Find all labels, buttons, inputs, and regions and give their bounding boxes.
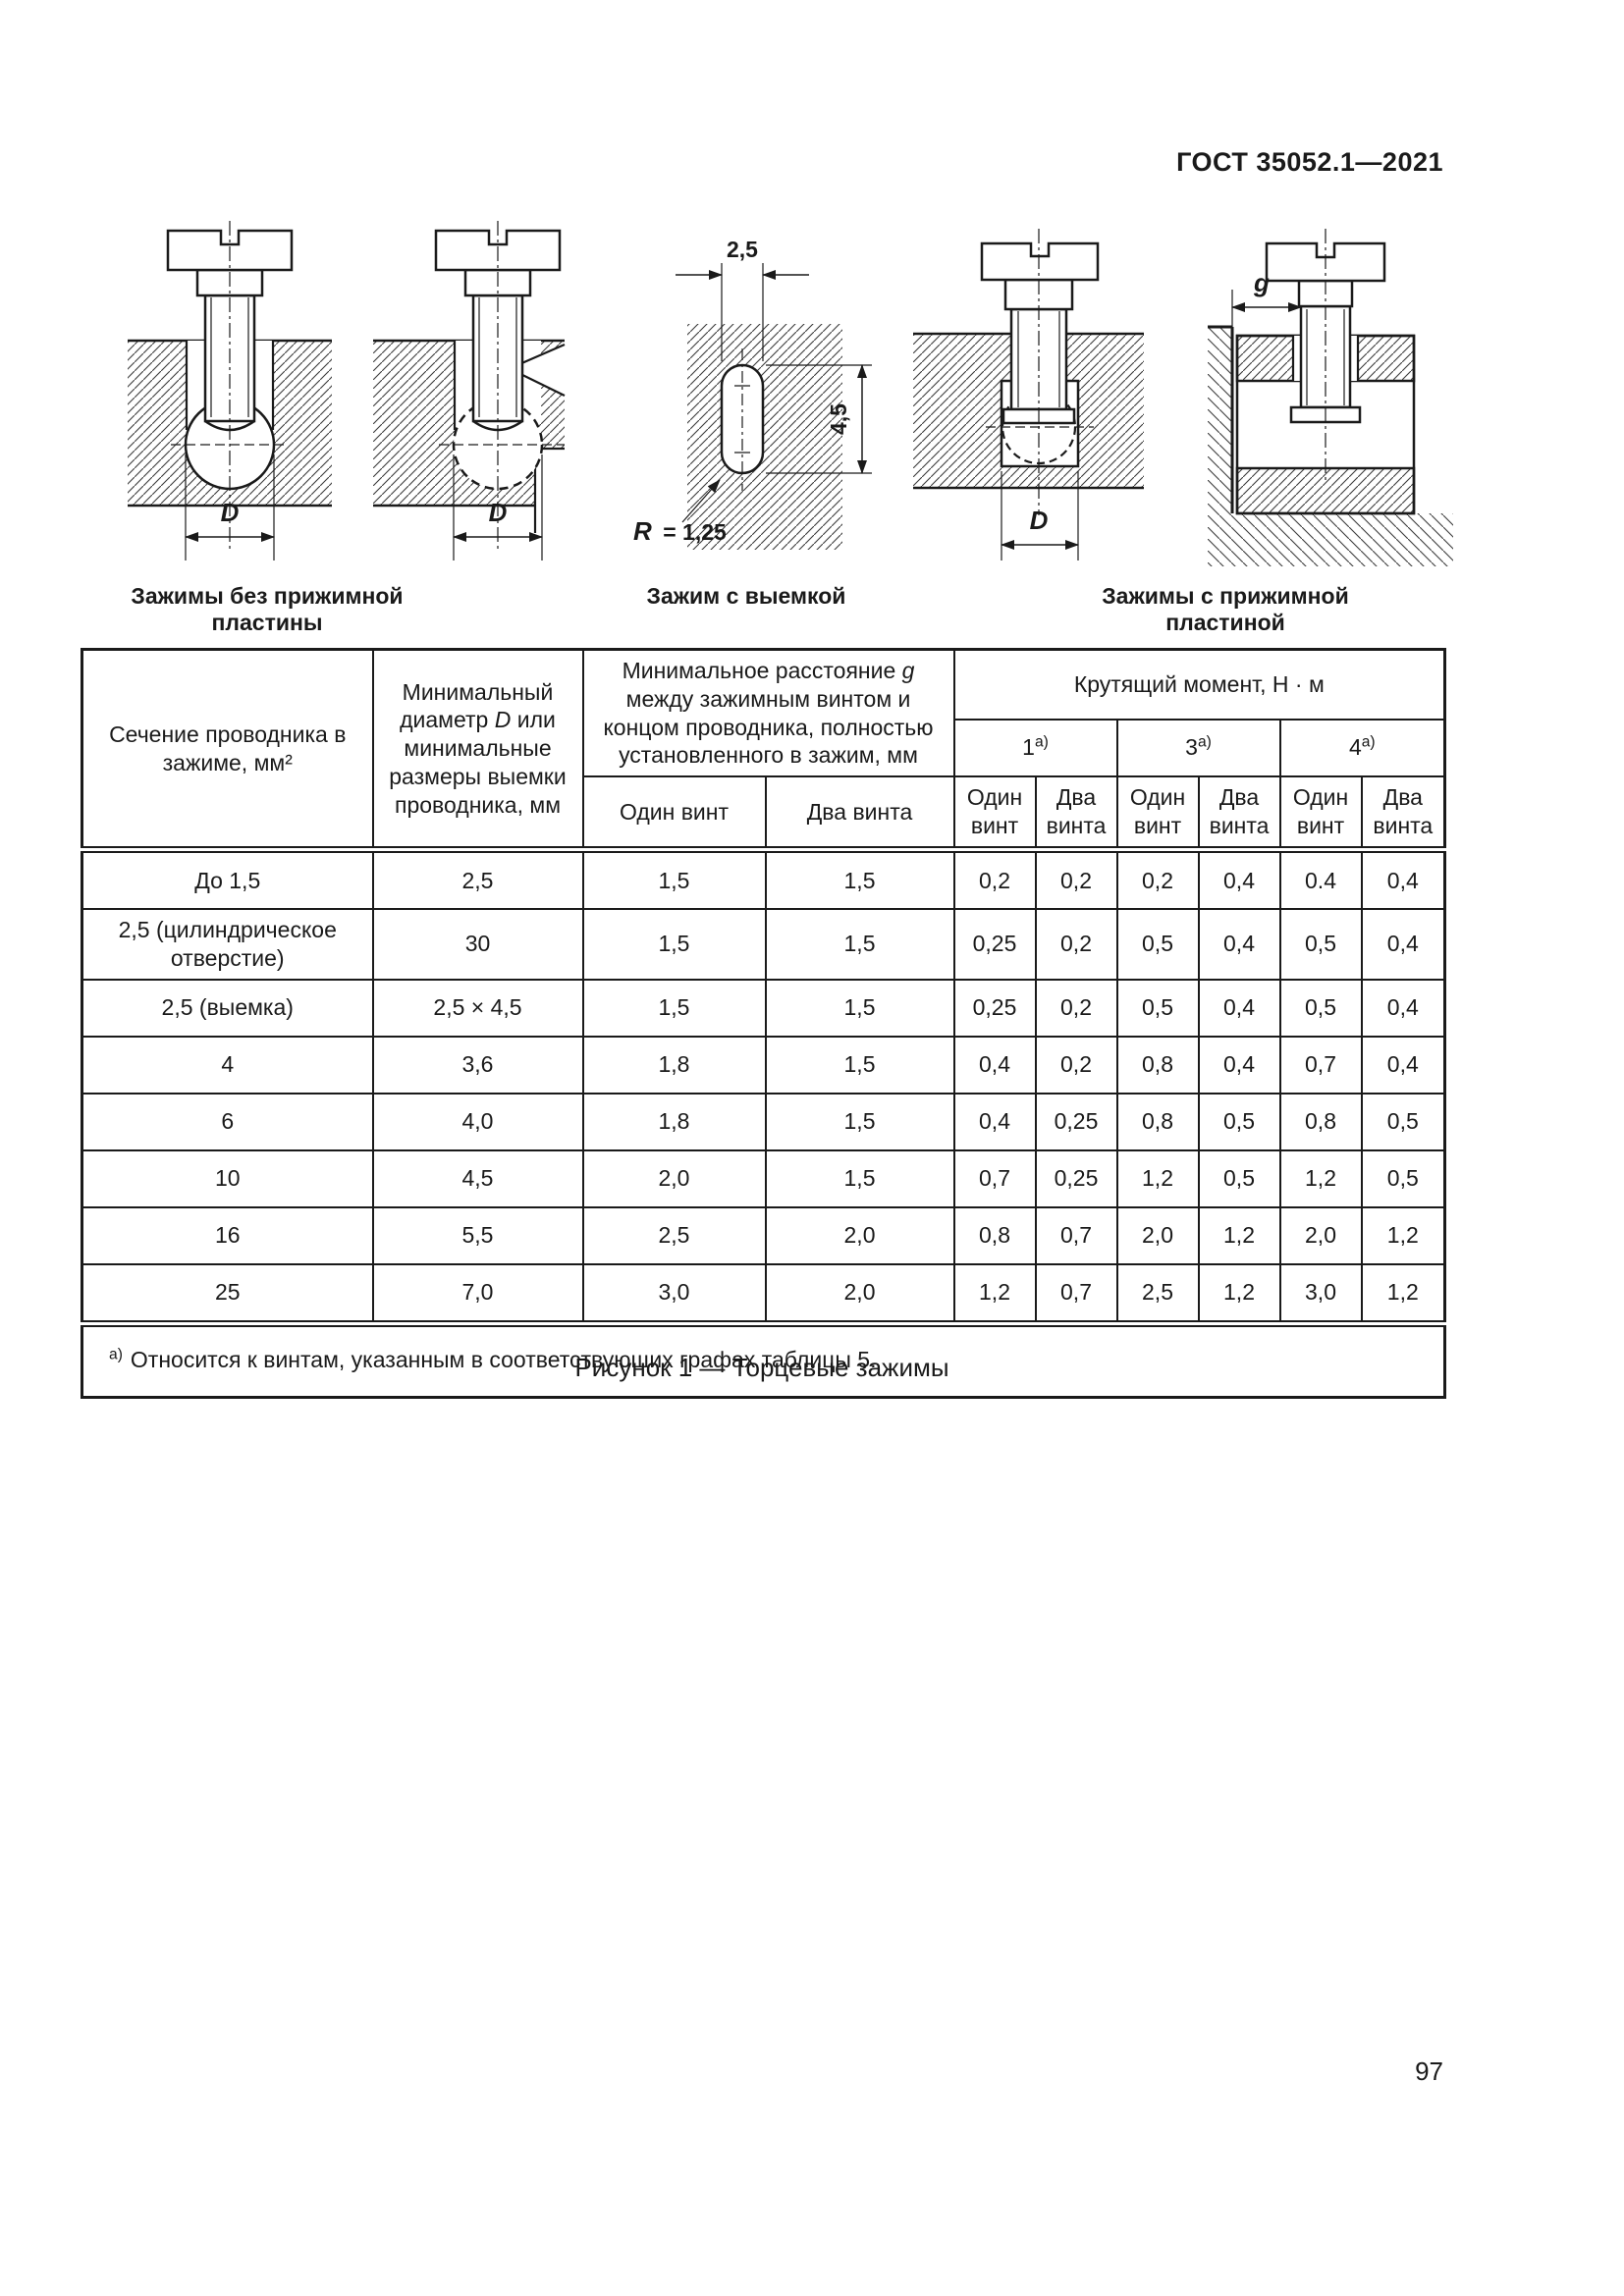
- drawing-graphics: [913, 229, 1144, 561]
- drawing-clamp-with-plate-2: g: [1208, 221, 1458, 574]
- header-cell-two-screws: Два винта: [1036, 776, 1117, 850]
- data-cell: 1,5: [766, 909, 954, 980]
- standard-number: ГОСТ 35052.1—2021: [1176, 147, 1443, 178]
- data-cell: 0,4: [1362, 1037, 1445, 1094]
- data-cell: 0,25: [954, 909, 1036, 980]
- data-cell: 4,5: [373, 1150, 583, 1207]
- data-cell: 1,5: [583, 909, 766, 980]
- header-text: между зажимным винтом и концом проводник…: [603, 686, 933, 769]
- data-cell: 0,4: [954, 1094, 1036, 1150]
- data-cell: 1,2: [1362, 1207, 1445, 1264]
- data-cell: 0,5: [1362, 1150, 1445, 1207]
- dimension-label-slot-width: 2,5: [727, 237, 758, 262]
- table-row: До 1,5 2,5 1,5 1,5 0,2 0,2 0,2 0,4 0.4 0…: [82, 850, 1445, 910]
- header-cell-one-screw: Один винт: [954, 776, 1036, 850]
- drawing-graphics: [373, 221, 565, 561]
- drawing-clamp-with-recess: 2,5 4,5 R = 1,25: [628, 226, 884, 579]
- table-row: 25 7,0 3,0 2,0 1,2 0,7 2,5 1,2 3,0 1,2: [82, 1264, 1445, 1324]
- group-footnote-ref: а): [1362, 734, 1376, 751]
- data-cell: 0,25: [1036, 1150, 1117, 1207]
- data-cell: 0,2: [954, 850, 1036, 910]
- data-cell: 0,7: [954, 1150, 1036, 1207]
- dimension-label-g: g: [1253, 268, 1270, 297]
- group-footnote-ref: а): [1035, 734, 1049, 751]
- data-cell: 0,8: [1117, 1094, 1199, 1150]
- data-cell: 1,2: [1199, 1264, 1280, 1324]
- data-cell: 2,5 × 4,5: [373, 980, 583, 1037]
- data-cell: 0,4: [954, 1037, 1036, 1094]
- data-cell: 2,5 (цилиндрическое отверстие): [82, 909, 373, 980]
- header-cell-cross-section: Сечение проводника в зажиме, мм²: [82, 650, 373, 850]
- header-cell-min-diameter: Минимальный диаметр D или минимальные ра…: [373, 650, 583, 850]
- caption-clamps-without-plate: Зажимы без прижимной пластины: [81, 583, 454, 636]
- header-cell-screw-type-3: 3а): [1117, 720, 1280, 776]
- data-cell: 1,8: [583, 1037, 766, 1094]
- header-cell-screw-type-1: 1а): [954, 720, 1117, 776]
- header-cell-two-screws: Два винта: [1362, 776, 1445, 850]
- group-number: 3: [1185, 734, 1198, 760]
- data-cell: 0,2: [1036, 909, 1117, 980]
- data-cell: 30: [373, 909, 583, 980]
- data-cell: 0,8: [1280, 1094, 1362, 1150]
- data-cell: 1,2: [1117, 1150, 1199, 1207]
- data-cell: 0.4: [1280, 850, 1362, 910]
- data-cell: 0,4: [1362, 980, 1445, 1037]
- data-cell: 0,4: [1199, 1037, 1280, 1094]
- data-cell: 3,6: [373, 1037, 583, 1094]
- data-cell: 0,5: [1280, 909, 1362, 980]
- caption-clamps-with-plate: Зажимы с прижимной пластиной: [1044, 583, 1407, 636]
- data-cell: 4,0: [373, 1094, 583, 1150]
- header-cell-two-screws: Два винта: [1199, 776, 1280, 850]
- data-cell: 1,5: [766, 1037, 954, 1094]
- header-var-d: D: [495, 707, 512, 732]
- group-number: 4: [1349, 734, 1362, 760]
- header-cell-one-screw: Один винт: [1280, 776, 1362, 850]
- data-cell: 1,5: [583, 850, 766, 910]
- header-cell-min-distance: Минимальное расстояние g между зажимным …: [583, 650, 954, 777]
- data-cell: 2,5: [1117, 1264, 1199, 1324]
- data-cell: 0,5: [1117, 909, 1199, 980]
- header-cell-one-screw: Один винт: [1117, 776, 1199, 850]
- dimension-label-slot-height: 4,5: [826, 403, 851, 435]
- data-cell: 0,8: [1117, 1037, 1199, 1094]
- data-cell: 0,8: [954, 1207, 1036, 1264]
- data-cell: 0,7: [1280, 1037, 1362, 1094]
- table-row: 4 3,6 1,8 1,5 0,4 0,2 0,8 0,4 0,7 0,4: [82, 1037, 1445, 1094]
- data-cell: 0,25: [954, 980, 1036, 1037]
- table-row: 6 4,0 1,8 1,5 0,4 0,25 0,8 0,5 0,8 0,5: [82, 1094, 1445, 1150]
- header-cell-screw-type-4: 4а): [1280, 720, 1445, 776]
- table-row: 2,5 (цилиндрическое отверстие) 30 1,5 1,…: [82, 909, 1445, 980]
- data-cell: 2,5 (выемка): [82, 980, 373, 1037]
- data-cell: 1,5: [766, 1094, 954, 1150]
- data-cell: 1,5: [766, 1150, 954, 1207]
- group-number: 1: [1022, 734, 1035, 760]
- drawing-clamp-without-plate-1: D: [108, 221, 344, 574]
- data-cell: 0,4: [1362, 909, 1445, 980]
- data-cell: 1,2: [1280, 1150, 1362, 1207]
- data-cell: 1,2: [1199, 1207, 1280, 1264]
- data-cell: 0,2: [1036, 980, 1117, 1037]
- drawing-clamp-without-plate-2: D: [373, 221, 579, 574]
- data-cell: 2,5: [583, 1207, 766, 1264]
- data-cell: 3,0: [583, 1264, 766, 1324]
- data-cell: 0,5: [1199, 1150, 1280, 1207]
- data-cell: 2,0: [1117, 1207, 1199, 1264]
- header-cell-one-screw: Один винт: [583, 776, 766, 850]
- caption-clamp-with-recess: Зажим с выемкой: [589, 583, 903, 610]
- data-cell: 1,5: [766, 850, 954, 910]
- page-number: 97: [1415, 2056, 1443, 2087]
- data-cell: 0,2: [1117, 850, 1199, 910]
- data-cell: До 1,5: [82, 850, 373, 910]
- document-page: ГОСТ 35052.1—2021: [0, 0, 1624, 2296]
- data-cell: 5,5: [373, 1207, 583, 1264]
- data-cell: 7,0: [373, 1264, 583, 1324]
- data-cell: 0,4: [1199, 980, 1280, 1037]
- data-cell: 1,5: [583, 980, 766, 1037]
- header-var-g: g: [902, 658, 915, 683]
- data-cell: 3,0: [1280, 1264, 1362, 1324]
- data-cell: 0,2: [1036, 1037, 1117, 1094]
- figure-caption: Рисунок 1 — Торцевые зажимы: [81, 1353, 1443, 1383]
- data-cell: 2,0: [766, 1264, 954, 1324]
- clamp-dimensions-table: Сечение проводника в зажиме, мм² Минимал…: [81, 648, 1446, 1399]
- data-cell: 16: [82, 1207, 373, 1264]
- data-cell: 0,5: [1199, 1094, 1280, 1150]
- group-footnote-ref: а): [1198, 734, 1212, 751]
- header-cell-two-screws: Два винта: [766, 776, 954, 850]
- data-cell: 1,5: [766, 980, 954, 1037]
- data-cell: 0,2: [1036, 850, 1117, 910]
- data-cell: 4: [82, 1037, 373, 1094]
- data-cell: 1,8: [583, 1094, 766, 1150]
- data-cell: 0,4: [1199, 909, 1280, 980]
- header-text: Минимальное расстояние: [623, 658, 902, 683]
- data-cell: 6: [82, 1094, 373, 1150]
- dimension-label-d: D: [1030, 506, 1049, 535]
- header-cell-torque: Крутящий момент, Н · м: [954, 650, 1445, 720]
- data-cell: 0,7: [1036, 1264, 1117, 1324]
- data-cell: 0,7: [1036, 1207, 1117, 1264]
- table-row: 10 4,5 2,0 1,5 0,7 0,25 1,2 0,5 1,2 0,5: [82, 1150, 1445, 1207]
- data-cell: 2,5: [373, 850, 583, 910]
- data-cell: 2,0: [583, 1150, 766, 1207]
- drawing-clamp-with-plate-1: D: [913, 221, 1154, 574]
- radius-label: R = 1,25: [633, 516, 727, 546]
- data-cell: 1,2: [1362, 1264, 1445, 1324]
- drawing-graphics: [1208, 229, 1453, 566]
- dimension-label-d: D: [221, 498, 240, 527]
- data-cell: 2,0: [1280, 1207, 1362, 1264]
- data-cell: 0,5: [1280, 980, 1362, 1037]
- data-cell: 2,0: [766, 1207, 954, 1264]
- table-row: 16 5,5 2,5 2,0 0,8 0,7 2,0 1,2 2,0 1,2: [82, 1207, 1445, 1264]
- data-cell: 0,25: [1036, 1094, 1117, 1150]
- data-cell: 10: [82, 1150, 373, 1207]
- data-cell: 0,5: [1362, 1094, 1445, 1150]
- data-cell: 0,4: [1199, 850, 1280, 910]
- data-cell: 0,5: [1117, 980, 1199, 1037]
- table-row: 2,5 (выемка) 2,5 × 4,5 1,5 1,5 0,25 0,2 …: [82, 980, 1445, 1037]
- data-cell: 0,4: [1362, 850, 1445, 910]
- dimension-label-d: D: [489, 498, 508, 527]
- data-cell: 25: [82, 1264, 373, 1324]
- data-cell: 1,2: [954, 1264, 1036, 1324]
